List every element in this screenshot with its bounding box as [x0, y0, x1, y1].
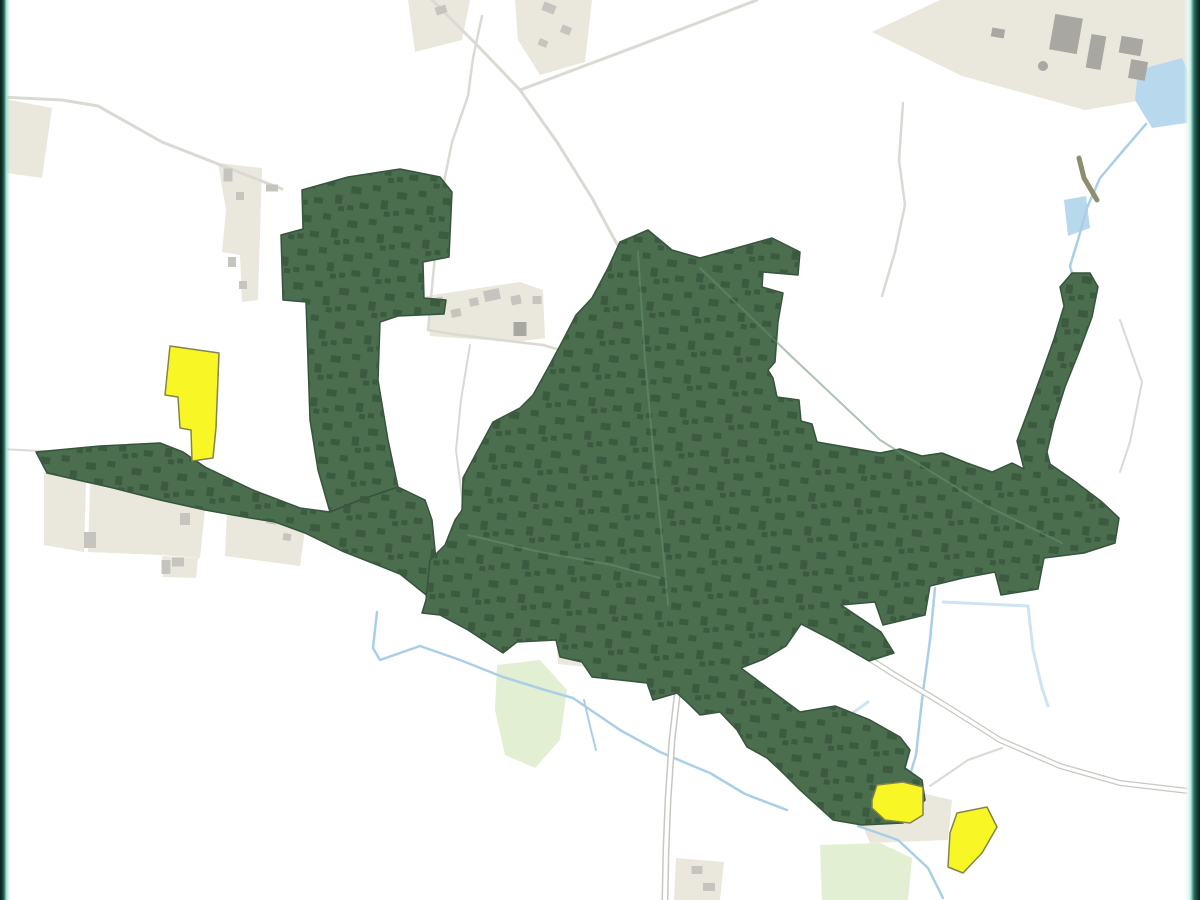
planning-map: [0, 0, 1200, 900]
road-line: [930, 748, 1002, 786]
building-footprint: [282, 533, 291, 541]
building-footprint: [236, 192, 244, 200]
stream-line: [584, 700, 596, 750]
building-footprint: [84, 532, 96, 548]
building-footprint: [180, 513, 190, 525]
building-footprint: [514, 322, 527, 336]
round-building-footprint: [1038, 61, 1048, 71]
grass-field: [820, 843, 912, 900]
road-line: [882, 103, 905, 296]
field-parcel: [44, 472, 86, 552]
road-line: [1120, 320, 1142, 472]
allocated-site-area: [948, 807, 997, 873]
building-footprint: [1128, 59, 1148, 81]
building-footprint: [224, 169, 233, 182]
building-footprint: [228, 257, 236, 267]
field-parcel: [674, 858, 724, 900]
building-footprint: [162, 560, 171, 574]
building-footprint: [703, 883, 715, 891]
settlement-boundary-layer: [36, 169, 1119, 825]
building-footprint: [172, 558, 184, 567]
allocated-site-area: [165, 346, 219, 461]
grass-field: [495, 660, 567, 768]
building-footprint: [692, 866, 703, 874]
pond: [1064, 196, 1090, 236]
map-canvas: [0, 0, 1200, 900]
track-line: [1079, 158, 1097, 200]
field-parcel: [0, 98, 52, 178]
stream-line: [943, 602, 1048, 706]
building-footprint: [533, 296, 542, 304]
building-footprint: [266, 185, 278, 192]
building-footprint: [239, 281, 247, 289]
